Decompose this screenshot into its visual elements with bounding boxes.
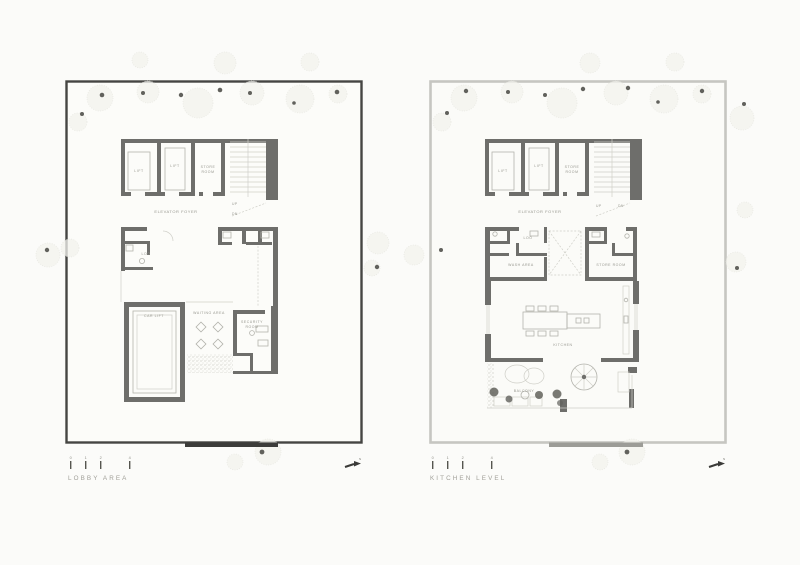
scale-tick-2: 2 [100,456,102,460]
room-label-store-room: STORE ROOM [596,263,625,267]
room-label-waiting: WAITING AREA [193,311,225,315]
lobby-site-boundary [67,82,362,443]
kitchen-plan-title: KITCHEN LEVEL [430,475,506,482]
lobby-plan-title: LOBBY AREA [68,475,128,482]
lobby-entrance-marker [185,443,278,448]
scale-tick-1: 1 [85,456,87,460]
stair-label-dn: DN [618,204,624,208]
scale-tick-4: 4 [491,456,493,460]
room-label-loo: LOO [523,236,532,240]
kitchen-plan: LIFT LIFT STORE ROOM ELEVATOR FOYER UP D… [404,53,754,482]
lobby-north-label: N [359,457,361,461]
room-label-balcony: BALCONY [514,389,535,393]
room-label-lift-a: LIFT [134,169,144,173]
stair-label-up: UP [596,204,602,208]
lobby-north-arrow: N [345,457,361,467]
lobby-plan: LIFT LIFT STORE ROOM ELEVATOR FOYER UP D… [36,52,389,482]
kitchen-scale-bar: 0 1 2 4 [432,456,493,469]
scale-tick-0: 0 [70,456,72,460]
gravel-strip [187,354,233,373]
scale-tick-4: 4 [129,456,131,460]
kitchen-north-label: N [723,457,725,461]
umbrella-table [571,364,597,390]
room-label-lift-b: LIFT [534,164,544,168]
stair-label-dn: DN [232,212,238,216]
lobby-scale-bar: 0 1 2 4 [70,456,131,469]
drawing-sheet: LIFT LIFT STORE ROOM ELEVATOR FOYER UP D… [0,0,800,565]
room-label-wash-area: WASH AREA [508,263,534,267]
room-label-lift-a: LIFT [498,169,508,173]
room-label-store-2: ROOM [201,170,214,174]
shrub [490,388,499,397]
room-label-kitchen: KITCHEN [553,343,572,347]
scale-tick-2: 2 [462,456,464,460]
room-label-security-2: ROOM [245,325,258,329]
room-label-security-1: SECURITY [241,320,263,324]
room-label-foyer: ELEVATOR FOYER [154,209,197,214]
room-label-store-1: STORE [565,165,580,169]
stair-label-up: UP [232,202,238,206]
kitchen-entrance-marker [549,443,643,448]
room-label-store-2: ROOM [565,170,578,174]
scale-tick-0: 0 [432,456,434,460]
room-label-car-lift: CAR LIFT [144,314,164,318]
room-label-loo: LOO [141,252,150,256]
balcony-planter-strip [487,363,494,408]
scale-tick-1: 1 [447,456,449,460]
room-label-lift-b: LIFT [170,164,180,168]
floor-plan-sheet: LIFT LIFT STORE ROOM ELEVATOR FOYER UP D… [0,0,800,565]
kitchen-north-arrow: N [709,457,725,467]
room-label-foyer: ELEVATOR FOYER [518,209,561,214]
room-label-store-1: STORE [201,165,216,169]
